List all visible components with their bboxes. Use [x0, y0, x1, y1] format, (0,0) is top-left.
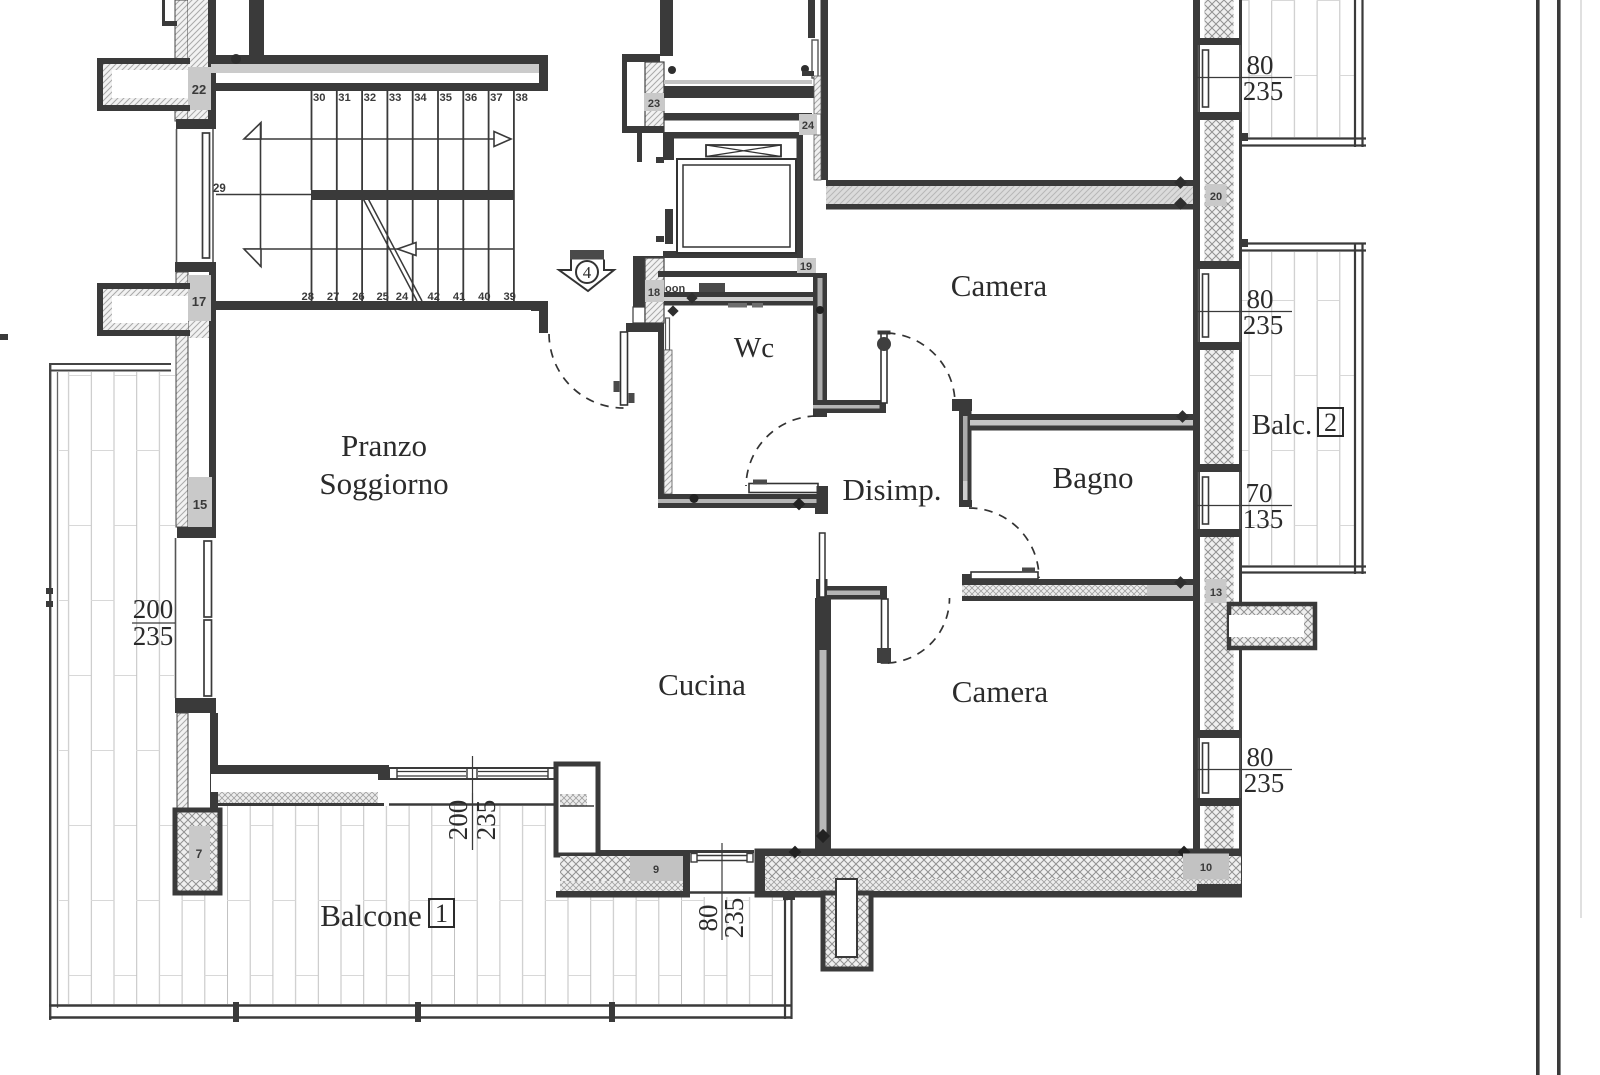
- svg-text:Soggiorno: Soggiorno: [319, 466, 448, 501]
- svg-text:30: 30: [313, 92, 325, 104]
- svg-text:235: 235: [471, 800, 501, 841]
- svg-text:235: 235: [1243, 310, 1284, 340]
- svg-text:27: 27: [327, 291, 339, 303]
- svg-text:135: 135: [1243, 504, 1284, 534]
- svg-text:235: 235: [1244, 768, 1285, 798]
- svg-text:Camera: Camera: [951, 268, 1048, 303]
- svg-text:Pranzo: Pranzo: [341, 428, 427, 463]
- svg-text:31: 31: [338, 92, 350, 104]
- svg-text:22: 22: [192, 82, 206, 97]
- svg-text:200: 200: [443, 800, 473, 841]
- svg-text:235: 235: [1243, 76, 1284, 106]
- svg-text:9: 9: [653, 864, 659, 876]
- svg-text:28: 28: [302, 291, 314, 303]
- svg-text:42: 42: [428, 291, 440, 303]
- svg-text:Balc.: Balc.: [1252, 409, 1312, 441]
- svg-text:19: 19: [800, 261, 812, 273]
- svg-text:32: 32: [364, 92, 376, 104]
- svg-text:2: 2: [1324, 408, 1337, 437]
- svg-text:36: 36: [465, 92, 477, 104]
- svg-text:7: 7: [196, 847, 203, 861]
- svg-text:34: 34: [414, 92, 427, 104]
- svg-text:10: 10: [1200, 862, 1212, 874]
- svg-text:Wc: Wc: [734, 332, 774, 364]
- svg-text:24: 24: [396, 291, 409, 303]
- svg-text:25: 25: [376, 291, 388, 303]
- svg-text:40: 40: [478, 291, 490, 303]
- svg-text:29: 29: [213, 183, 226, 195]
- svg-text:39: 39: [503, 291, 515, 303]
- svg-text:37: 37: [490, 92, 502, 104]
- svg-text:18: 18: [648, 287, 660, 299]
- svg-text:Disimp.: Disimp.: [842, 472, 941, 507]
- svg-text:20: 20: [1210, 191, 1222, 203]
- svg-text:17: 17: [192, 294, 206, 309]
- svg-text:24: 24: [802, 120, 815, 132]
- svg-text:Balcone: Balcone: [320, 898, 422, 933]
- svg-text:35: 35: [440, 92, 452, 104]
- svg-text:33: 33: [389, 92, 401, 104]
- svg-text:26: 26: [352, 291, 364, 303]
- svg-text:Camera: Camera: [952, 674, 1049, 709]
- svg-text:15: 15: [193, 497, 207, 512]
- svg-text:Cucina: Cucina: [658, 667, 746, 702]
- svg-text:1: 1: [435, 899, 448, 928]
- svg-text:38: 38: [515, 92, 527, 104]
- svg-text:Bagno: Bagno: [1053, 460, 1134, 495]
- svg-text:41: 41: [453, 291, 465, 303]
- svg-text:23: 23: [648, 98, 660, 110]
- svg-text:13: 13: [1210, 587, 1222, 599]
- svg-text:235: 235: [719, 898, 749, 939]
- svg-text:4: 4: [583, 263, 592, 282]
- svg-text:235: 235: [133, 621, 174, 651]
- svg-text:200: 200: [133, 594, 174, 624]
